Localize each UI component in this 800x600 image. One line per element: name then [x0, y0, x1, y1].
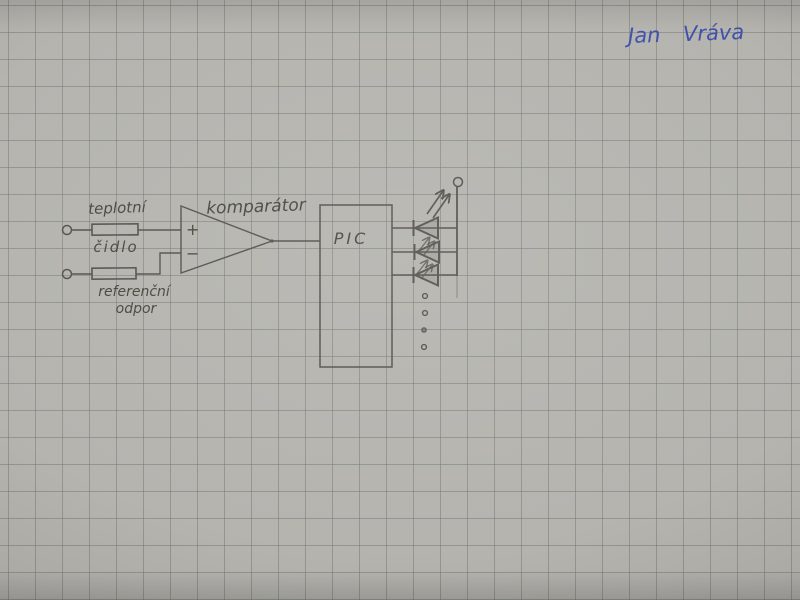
label-pic: PIC [334, 229, 369, 248]
input-terminal-bottom [63, 270, 72, 279]
led-symbol-2 [415, 238, 440, 263]
led-1-triangle [415, 218, 438, 239]
led-1-light-arrow-a [427, 191, 443, 214]
led-3-triangle [415, 265, 438, 286]
label-temperature-line2: čidlo [93, 238, 138, 256]
input-terminal-top [63, 226, 72, 235]
label-temperature-line1: teplotní [88, 198, 148, 218]
photo-of-graph-paper: + − [0, 0, 800, 600]
comparator-minus-input-label: − [186, 244, 199, 263]
resistor-reference [92, 268, 136, 279]
more-leds-ellipsis [422, 294, 428, 350]
led-symbol-3 [414, 261, 439, 286]
circuit-diagram: + − [0, 0, 800, 600]
supply-terminal [454, 178, 463, 187]
comparator-plus-input-label: + [186, 220, 199, 239]
led-1-light-arrow-b [433, 195, 449, 218]
signature-blue-ink: Jan Vráva [628, 20, 745, 48]
label-comparator: komparátor [206, 195, 307, 218]
led-2-triangle [416, 242, 439, 263]
label-reference-line2: odpor [116, 301, 158, 317]
ellipsis-dot-4 [422, 345, 427, 350]
label-reference-line1: referenční [98, 284, 172, 300]
led-symbol-1 [414, 191, 450, 239]
ellipsis-dot-2 [423, 311, 428, 316]
ellipsis-dot-3 [422, 328, 426, 332]
wire-reference-to-minus-input [72, 253, 182, 274]
ellipsis-dot-1 [423, 294, 428, 299]
resistor-temperature-sensor [92, 224, 138, 235]
